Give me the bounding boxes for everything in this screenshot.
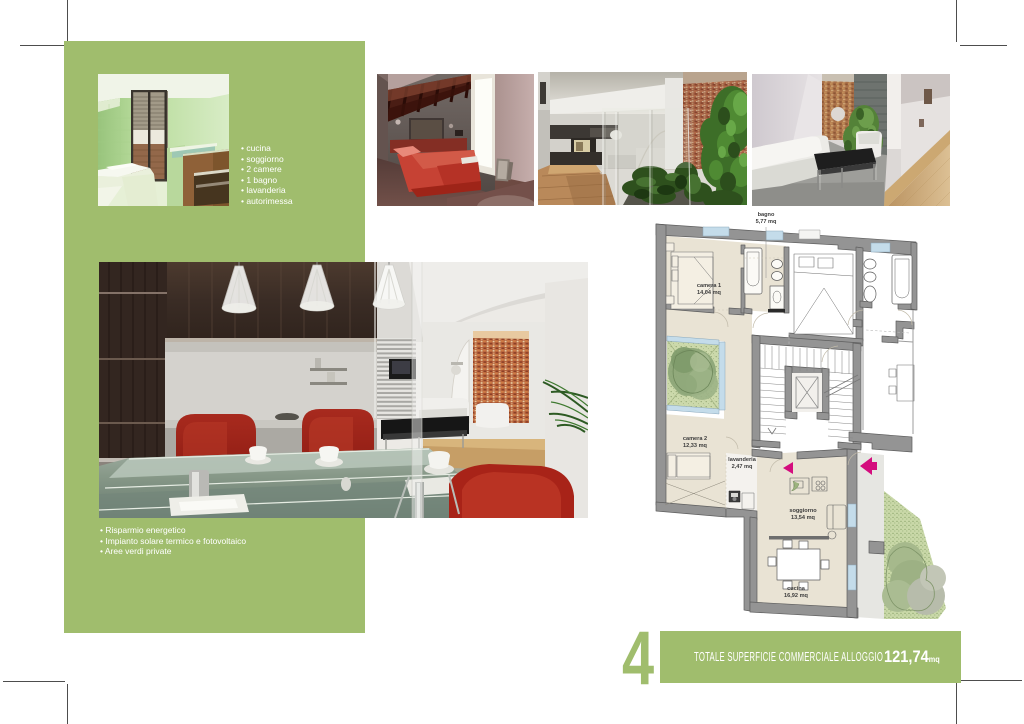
svg-text:soggiorno: soggiorno (789, 508, 817, 514)
svg-text:16,92 mq: 16,92 mq (784, 593, 809, 599)
svg-text:cucina: cucina (787, 586, 806, 592)
svg-text:13,54 mq: 13,54 mq (791, 515, 816, 521)
svg-text:camera 2: camera 2 (683, 436, 707, 442)
svg-text:14,04 mq: 14,04 mq (697, 290, 722, 296)
svg-text:lavanderia: lavanderia (728, 457, 757, 463)
svg-text:bagno: bagno (758, 212, 775, 218)
svg-text:camera 1: camera 1 (697, 283, 721, 289)
svg-text:5,77 mq: 5,77 mq (756, 219, 777, 225)
svg-text:12,33 mq: 12,33 mq (683, 443, 708, 449)
svg-text:2,47 mq: 2,47 mq (732, 464, 753, 470)
